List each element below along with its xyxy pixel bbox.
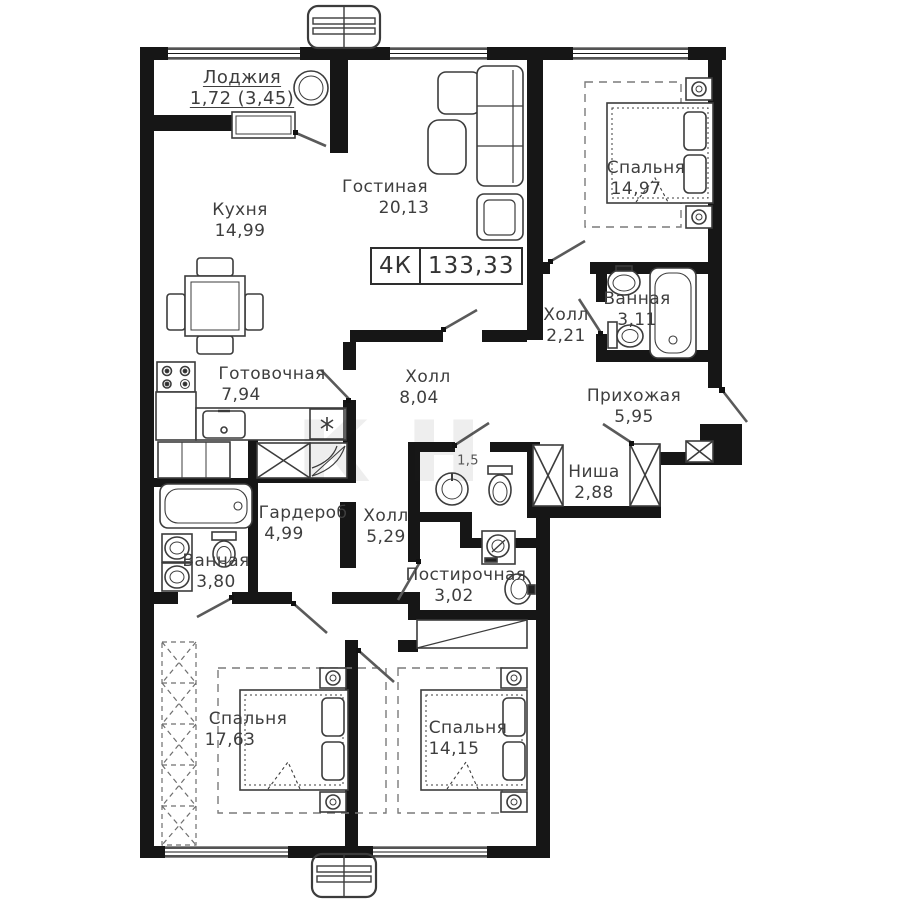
armchair xyxy=(477,194,523,240)
room-label-loggia: Лоджия 1,72 (3,45) xyxy=(190,67,294,109)
room-label-bedroom-left: Спальня 17,63 xyxy=(209,709,287,751)
washing-machine xyxy=(482,531,515,564)
niche-wardrobe-right xyxy=(630,444,660,506)
ac-unit-bottom xyxy=(312,854,376,897)
apartment-type-badge: 4К 133,33 xyxy=(370,247,523,285)
window-bedroom-right xyxy=(373,847,487,858)
room-label-entry: Прихожая 5,95 xyxy=(587,386,681,428)
floorplan: кн Лоджия 1,72 (3,45) Кухня 14,99 Гостин… xyxy=(0,0,900,900)
room-label-cooking: Готовочная 7,94 xyxy=(218,364,325,406)
corner-cabinet xyxy=(310,443,347,478)
room-label-niche: Ниша 2,88 xyxy=(568,462,619,504)
room-label-kitchen: Кухня 14,99 xyxy=(212,200,268,242)
room-label-bedroom-top: Спальня 14,97 xyxy=(607,158,685,200)
room-label-laundry: Постирочная 3,02 xyxy=(406,565,527,607)
coffee-table xyxy=(428,120,466,174)
window-bedroom-top xyxy=(573,48,688,60)
room-label-wardrobe: Гардероб 4,99 xyxy=(259,503,348,545)
wc-sink xyxy=(436,473,468,505)
kitchen-lower-cabinet xyxy=(158,442,230,478)
room-label-hall-small: Холл 2,21 xyxy=(543,305,588,347)
loggia-window-sill xyxy=(232,112,295,138)
window-bedroom-left xyxy=(165,847,288,858)
kitchen-table xyxy=(167,258,263,354)
wc-toilet xyxy=(488,466,512,505)
bathtub-lower xyxy=(160,484,252,528)
window-loggia xyxy=(168,48,300,60)
hob-unit xyxy=(310,409,344,439)
room-label-hall-main: Холл 8,04 xyxy=(405,367,450,409)
window-living xyxy=(390,48,487,60)
ac-unit-top xyxy=(308,6,380,48)
apartment-rooms-count: 4К xyxy=(372,249,421,283)
room-label-bathroom-top: Ванная 3,11 xyxy=(603,289,670,331)
niche-wardrobe-left xyxy=(533,445,563,506)
kitchen-sink xyxy=(203,411,245,438)
cabinet-x xyxy=(257,443,310,478)
entry-cabinet xyxy=(686,441,713,462)
room-label-bathroom-lower: Ванная 3,80 xyxy=(182,551,249,593)
floorplan-drawing xyxy=(0,0,900,900)
room-label-wc: 1,5 xyxy=(457,451,479,472)
apartment-total-area: 133,33 xyxy=(421,249,521,283)
room-label-living: Гостиная 20,13 xyxy=(341,177,430,219)
room-label-hall-lower: Холл 5,29 xyxy=(363,506,408,548)
room-label-bedroom-right: Спальня 14,15 xyxy=(429,718,507,760)
loggia-chair xyxy=(294,71,328,105)
wardrobe-strip xyxy=(417,620,527,648)
